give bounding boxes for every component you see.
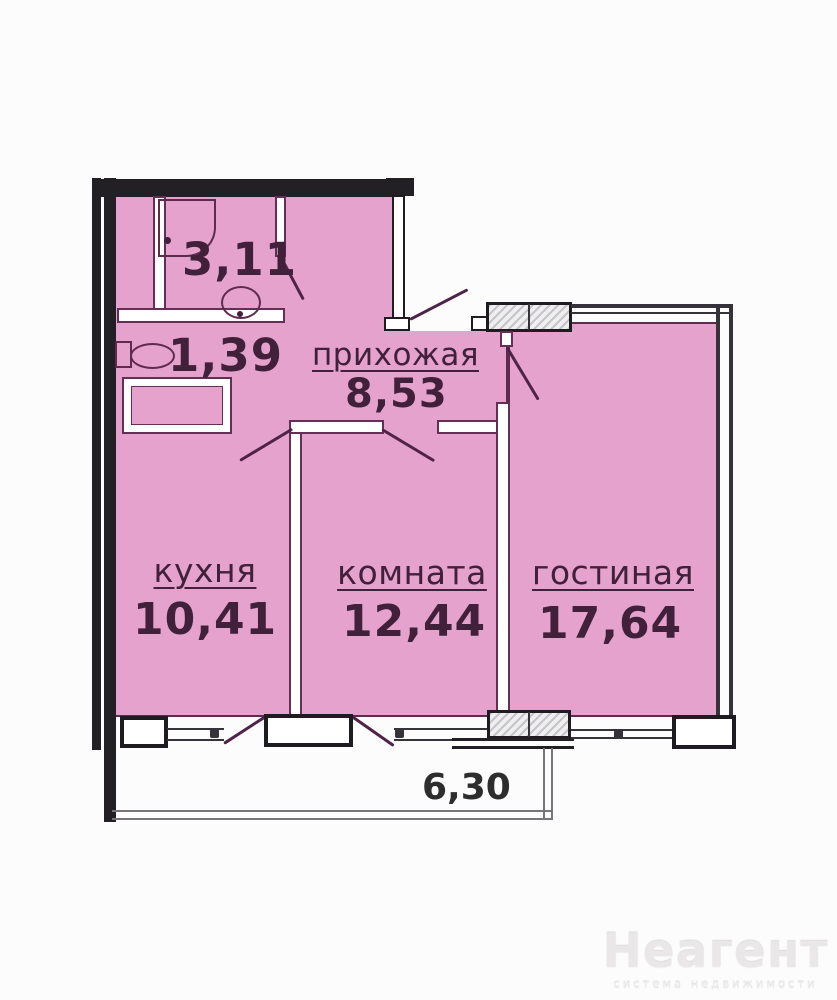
balcony-right-line-2	[551, 748, 553, 819]
balcony-dimension-label: 6,30	[422, 767, 507, 808]
watermark-tagline: система недвижимости	[598, 977, 833, 991]
kitchen-window-line-2	[167, 739, 224, 741]
room-window-line-1	[394, 728, 487, 730]
living-window-dot	[614, 730, 623, 739]
wall-right-line-1	[716, 304, 720, 717]
wall-room-left	[289, 420, 302, 717]
wall-top	[98, 179, 392, 197]
wall-niche-foot	[384, 317, 410, 331]
kitchen-name-label: кухня	[145, 551, 265, 590]
wall-room-top	[289, 420, 384, 434]
bathroom-area-label: 3,11	[182, 233, 277, 286]
kitchen-window-dot	[210, 729, 219, 738]
wall-niche-stem	[392, 195, 405, 320]
living-name-label: гостиная	[532, 553, 687, 592]
room-area-label: 12,44	[342, 596, 482, 647]
toilet-area-label: 1,39	[168, 329, 268, 382]
wall-left-outer	[92, 178, 101, 750]
wall-corridor-line-2	[571, 312, 733, 314]
entry-jamb	[500, 331, 513, 347]
floor-plan: 3,11 1,39 прихожая 8,53 кухня 10,41 комн…	[0, 0, 837, 1000]
watermark: Неагент система недвижимости	[598, 928, 833, 991]
wall-corridor-line-1	[571, 304, 733, 308]
wall-left-inner	[104, 178, 116, 822]
balcony-bottom-line-2	[112, 818, 553, 820]
washbasin-tap-dot	[237, 311, 243, 317]
hallway-name-label: прихожая	[312, 337, 470, 373]
balcony-door-block	[264, 714, 353, 747]
kitchen-balcony-door-swing	[223, 715, 267, 745]
balcony-bottom-line-1	[112, 810, 553, 812]
kitchen-area-label: 10,41	[133, 594, 273, 645]
facade-pier-right	[672, 715, 736, 749]
wall-right-line-2	[729, 304, 733, 718]
room-window-dot	[395, 729, 404, 738]
wall-bathroom-bottom	[117, 308, 285, 323]
room-balcony-door-swing	[351, 715, 394, 747]
hallway-area-label: 8,53	[345, 371, 445, 417]
wall-top-niche-head	[386, 178, 414, 196]
facade-vent-block-divider	[528, 712, 530, 737]
duct-shaft-inner	[131, 386, 223, 425]
balcony-right-line-1	[543, 748, 545, 819]
watermark-brand: Неагент	[598, 928, 833, 975]
wall-living-left	[496, 402, 510, 717]
shower-drain-dot	[164, 237, 171, 244]
floor-area-living	[508, 322, 718, 717]
facade-pier-left	[120, 716, 168, 748]
living-area-label: 17,64	[538, 598, 678, 649]
room-name-label: комната	[337, 553, 487, 592]
facade-vent-sill	[452, 738, 574, 749]
entry-door-block-divider	[528, 304, 530, 330]
